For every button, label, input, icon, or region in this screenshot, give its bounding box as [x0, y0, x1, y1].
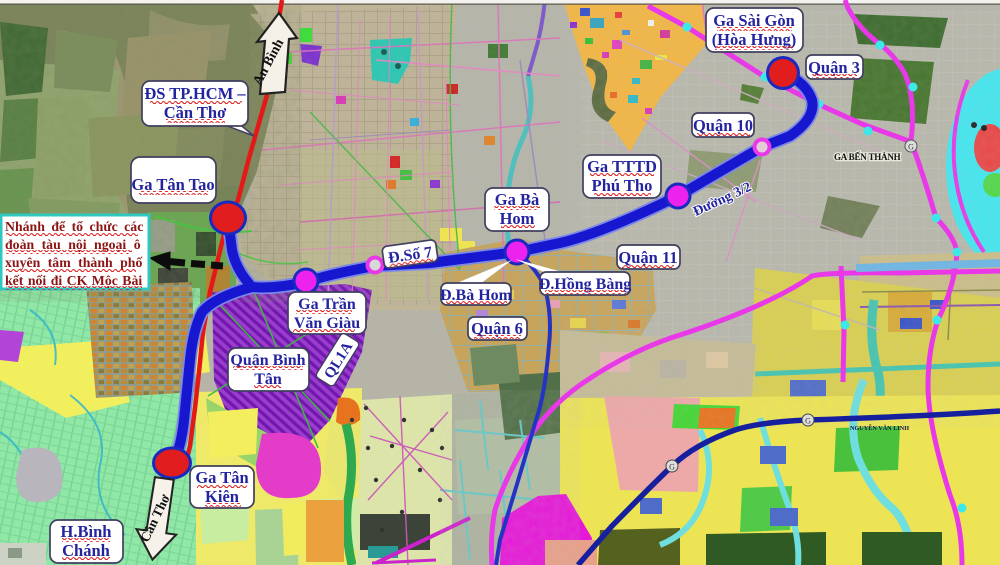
svg-text:xuyên tâm thành phố: xuyên tâm thành phố — [5, 255, 142, 270]
svg-text:GA BẾN THÀNH: GA BẾN THÀNH — [834, 152, 901, 162]
svg-text:G: G — [908, 143, 914, 152]
svg-text:G: G — [805, 417, 811, 426]
svg-text:đoàn tàu nội ngoại ô: đoàn tàu nội ngoại ô — [5, 237, 141, 252]
svg-text:NGUYỄN VĂN LINH: NGUYỄN VĂN LINH — [850, 424, 909, 432]
svg-text:G: G — [669, 463, 675, 472]
svg-text:Nhánh để tổ chức các: Nhánh để tổ chức các — [5, 219, 143, 234]
svg-text:kết nối đi CK Mộc Bài: kết nối đi CK Mộc Bài — [5, 273, 142, 288]
